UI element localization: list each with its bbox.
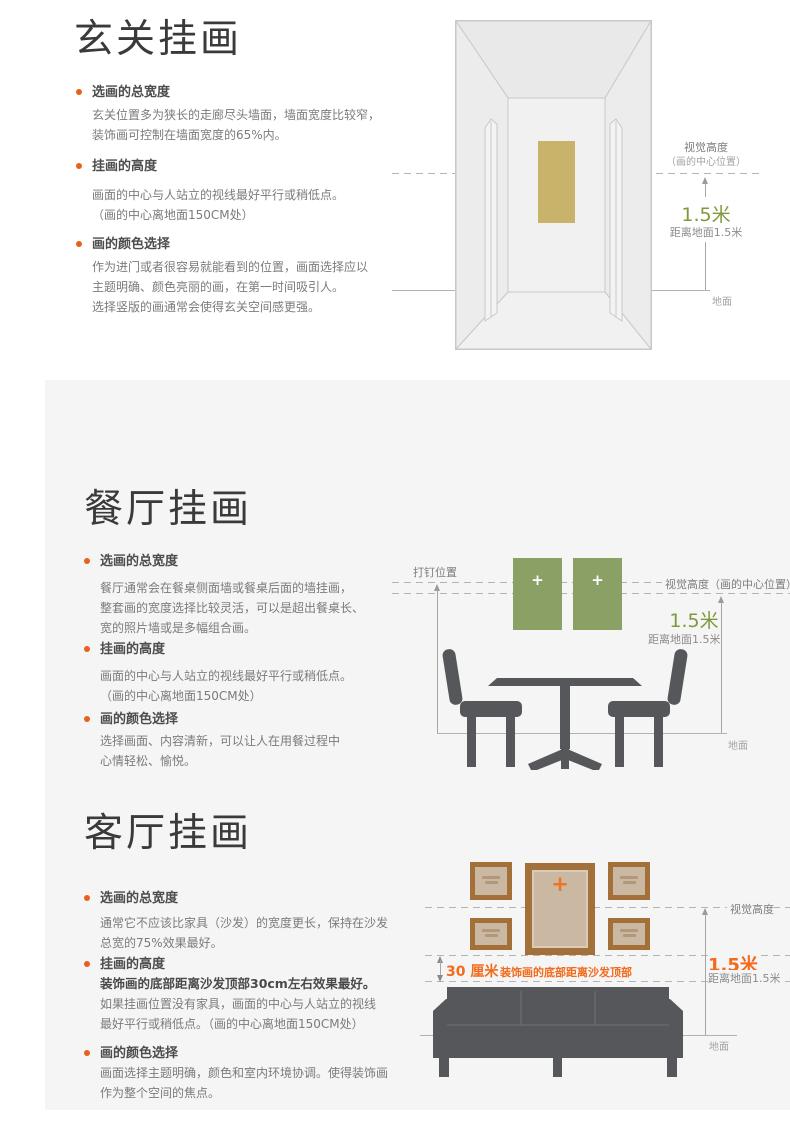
bullet-heading: 挂画的高度 [92, 158, 344, 175]
nail-measure-line [437, 590, 438, 733]
text-line: 选择竖版的画通常会使得玄关空间感更强。 [92, 297, 368, 317]
height-sublabel: 距离地面1.5米 [648, 631, 721, 647]
left-chair [442, 648, 522, 767]
bullet-icon [84, 716, 90, 722]
frame-mat [613, 923, 645, 945]
text-line: 作为进门或者很容易就能看到的位置，画面选择应以 [92, 257, 368, 277]
bullet-body: 画面的中心与人站立的视线最好平行或稍低点。（画的中心离地面150CM处） [92, 185, 344, 225]
plus-marker-icon: + [525, 874, 595, 895]
bullet-body: 画面的中心与人站立的视线最好平行或稍低点。（画的中心离地面150CM处） [100, 666, 352, 706]
bullet-heading: 画的颜色选择 [92, 236, 368, 253]
text-line: 装饰画的底部距离沙发顶部30cm左右效果最好。 [100, 974, 376, 994]
bullet-icon [76, 163, 82, 169]
bullet-item: 选画的总宽度 餐厅通常会在餐桌侧面墙或餐桌后面的墙挂画，整套画的宽度选择比较灵活… [84, 553, 364, 638]
sofa-illustration [433, 985, 683, 1080]
bullet-item: 选画的总宽度 玄关位置多为狭长的走廊尽头墙面，墙面宽度比较窄，装饰画可控制在墙面… [76, 84, 380, 145]
visual-height-label: 视觉高度 [727, 901, 774, 917]
bullet-icon [76, 241, 82, 247]
section-title: 玄关挂画 [74, 18, 242, 62]
text-line: 作为整个空间的焦点。 [100, 1083, 388, 1103]
infographic-page: { "colors": { "accent_orange": "#e8611c"… [0, 0, 790, 1122]
bullet-body: 选择画面、内容清新，可以让人在用餐过程中心情轻松、愉悦。 [100, 731, 340, 771]
section-title: 餐厅挂画 [84, 488, 252, 532]
text-line: 整套画的宽度选择比较灵活，可以是超出餐桌长、 [100, 598, 364, 618]
text-line: 选择画面、内容清新，可以让人在用餐过程中 [100, 731, 340, 751]
text-line: 玄关位置多为狭长的走廊尽头墙面，墙面宽度比较窄， [92, 105, 380, 125]
text-line: 总宽的75%效果最好。 [100, 933, 388, 953]
measure-line [705, 183, 706, 197]
ground-label: 地面 [709, 1038, 729, 1053]
text-line: 心情轻松、愉悦。 [100, 751, 340, 771]
bullet-body: 如果挂画位置没有家具，画面的中心与人站立的视线最好平行或稍低点。（画的中心离地面… [100, 994, 376, 1034]
visual-height-label: 视觉高度（画的中心位置） [662, 576, 790, 592]
visual-height-sublabel: （画的中心位置） [660, 153, 752, 168]
frame-label-placeholder [620, 929, 638, 932]
frame-label-placeholder [482, 876, 500, 879]
frame-label-placeholder [620, 876, 638, 879]
small-frame-top-left [470, 862, 512, 900]
plus-marker-icon: + [573, 573, 622, 588]
bullet-icon [84, 961, 90, 967]
small-frame-top-right [608, 862, 650, 900]
bullet-item: 画的颜色选择 画面选择主题明确，颜色和室内环境协调。使得装饰画作为整个空间的焦点… [84, 1045, 388, 1103]
measure-line [705, 242, 706, 290]
bullet-heading: 挂画的高度 [100, 641, 352, 658]
measure-line [705, 914, 706, 1035]
hallway-illustration [455, 20, 652, 350]
plus-marker-icon: + [513, 573, 562, 588]
frame-mat [475, 867, 507, 895]
bullet-icon [76, 89, 82, 95]
dining-set-illustration [440, 645, 690, 770]
bullet-icon [84, 646, 90, 652]
small-frame-bottom-right [608, 918, 650, 950]
bullet-icon [84, 895, 90, 901]
text-line: 最好平行或稍低点。（画的中心离地面150CM处） [100, 1014, 376, 1034]
green-frame-left: + [513, 558, 562, 630]
bullet-body: 通常它不应该比家具（沙发）的宽度更长，保持在沙发总宽的75%效果最好。 [100, 913, 388, 953]
bullet-item: 挂画的高度 装饰画的底部距离沙发顶部30cm左右效果最好。 如果挂画位置没有家具… [84, 956, 376, 1034]
bullet-item: 挂画的高度 画面的中心与人站立的视线最好平行或稍低点。（画的中心离地面150CM… [84, 641, 352, 706]
frame-mat [475, 923, 507, 945]
bullet-body: 画面选择主题明确，颜色和室内环境协调。使得装饰画作为整个空间的焦点。 [100, 1063, 388, 1103]
height-value: 1.5米 [676, 200, 736, 227]
ground-label: 地面 [728, 737, 748, 752]
bullet-item: 挂画的高度 画面的中心与人站立的视线最好平行或稍低点。（画的中心离地面150CM… [76, 158, 344, 225]
nail-position-label: 打钉位置 [413, 564, 457, 580]
bullet-icon [84, 558, 90, 564]
text-line: 画面的中心与人站立的视线最好平行或稍低点。 [100, 666, 352, 686]
bullet-icon [84, 1050, 90, 1056]
frame-label-placeholder [623, 934, 636, 937]
bullet-body: 餐厅通常会在餐桌侧面墙或餐桌后面的墙挂画，整套画的宽度选择比较灵活，可以是超出餐… [100, 578, 364, 638]
bullet-heading: 选画的总宽度 [92, 84, 380, 101]
text-line: 宽的照片墙或是多幅组合画。 [100, 618, 364, 638]
bullet-item: 画的颜色选择 选择画面、内容清新，可以让人在用餐过程中心情轻松、愉悦。 [84, 711, 340, 771]
right-chair [608, 648, 688, 767]
bullet-heading: 选画的总宽度 [100, 890, 388, 907]
frame-label-placeholder [485, 881, 498, 884]
height-sublabel: 距离地面1.5米 [666, 224, 746, 240]
green-frame-right: + [573, 558, 622, 630]
ground-label: 地面 [712, 293, 732, 308]
height-value: 1.5米 [666, 606, 722, 633]
gap-value: 30 厘米 [446, 961, 498, 981]
bullet-body: 玄关位置多为狭长的走廊尽头墙面，墙面宽度比较窄，装饰画可控制在墙面宽度的65%内… [92, 105, 380, 145]
text-line: （画的中心离地面150CM处） [100, 686, 352, 706]
bullet-item: 画的颜色选择 作为进门或者很容易就能看到的位置，画面选择应以主题明确、颜色亮丽的… [76, 236, 368, 317]
hallway-painting [538, 141, 575, 223]
arrow-down-icon [437, 975, 443, 982]
bullet-heading: 画的颜色选择 [100, 711, 340, 728]
text-line: 主题明确、颜色亮丽的画，在第一时间吸引人。 [92, 277, 368, 297]
text-line: 画面选择主题明确，颜色和室内环境协调。使得装饰画 [100, 1063, 388, 1083]
frame-mat [613, 867, 645, 895]
text-line: 画面的中心与人站立的视线最好平行或稍低点。 [92, 185, 344, 205]
sofa-body [433, 999, 683, 1058]
bullet-heading: 画的颜色选择 [100, 1045, 388, 1062]
height-sublabel: 距离地面1.5米 [708, 970, 781, 986]
text-line: 装饰画可控制在墙面宽度的65%内。 [92, 125, 380, 145]
frame-label-placeholder [485, 934, 498, 937]
text-line: 餐厅通常会在餐桌侧面墙或餐桌后面的墙挂画， [100, 578, 364, 598]
frame-label-placeholder [482, 929, 500, 932]
large-center-frame: + [525, 863, 595, 955]
bullet-body: 作为进门或者很容易就能看到的位置，画面选择应以主题明确、颜色亮丽的画，在第一时间… [92, 257, 368, 317]
text-line: （画的中心离地面150CM处） [92, 205, 344, 225]
frame-label-placeholder [623, 881, 636, 884]
text-line: 通常它不应该比家具（沙发）的宽度更长，保持在沙发 [100, 913, 388, 933]
gap-label: 装饰画的底部距离沙发顶部 [500, 964, 632, 980]
bullet-body-bold: 装饰画的底部距离沙发顶部30cm左右效果最好。 [100, 974, 376, 994]
section-title: 客厅挂画 [84, 812, 252, 856]
bullet-item: 选画的总宽度 通常它不应该比家具（沙发）的宽度更长，保持在沙发总宽的75%效果最… [84, 890, 388, 953]
bullet-heading: 挂画的高度 [100, 956, 376, 973]
small-frame-bottom-left [470, 918, 512, 950]
text-line: 如果挂画位置没有家具，画面的中心与人站立的视线 [100, 994, 376, 1014]
bullet-heading: 选画的总宽度 [100, 553, 364, 570]
